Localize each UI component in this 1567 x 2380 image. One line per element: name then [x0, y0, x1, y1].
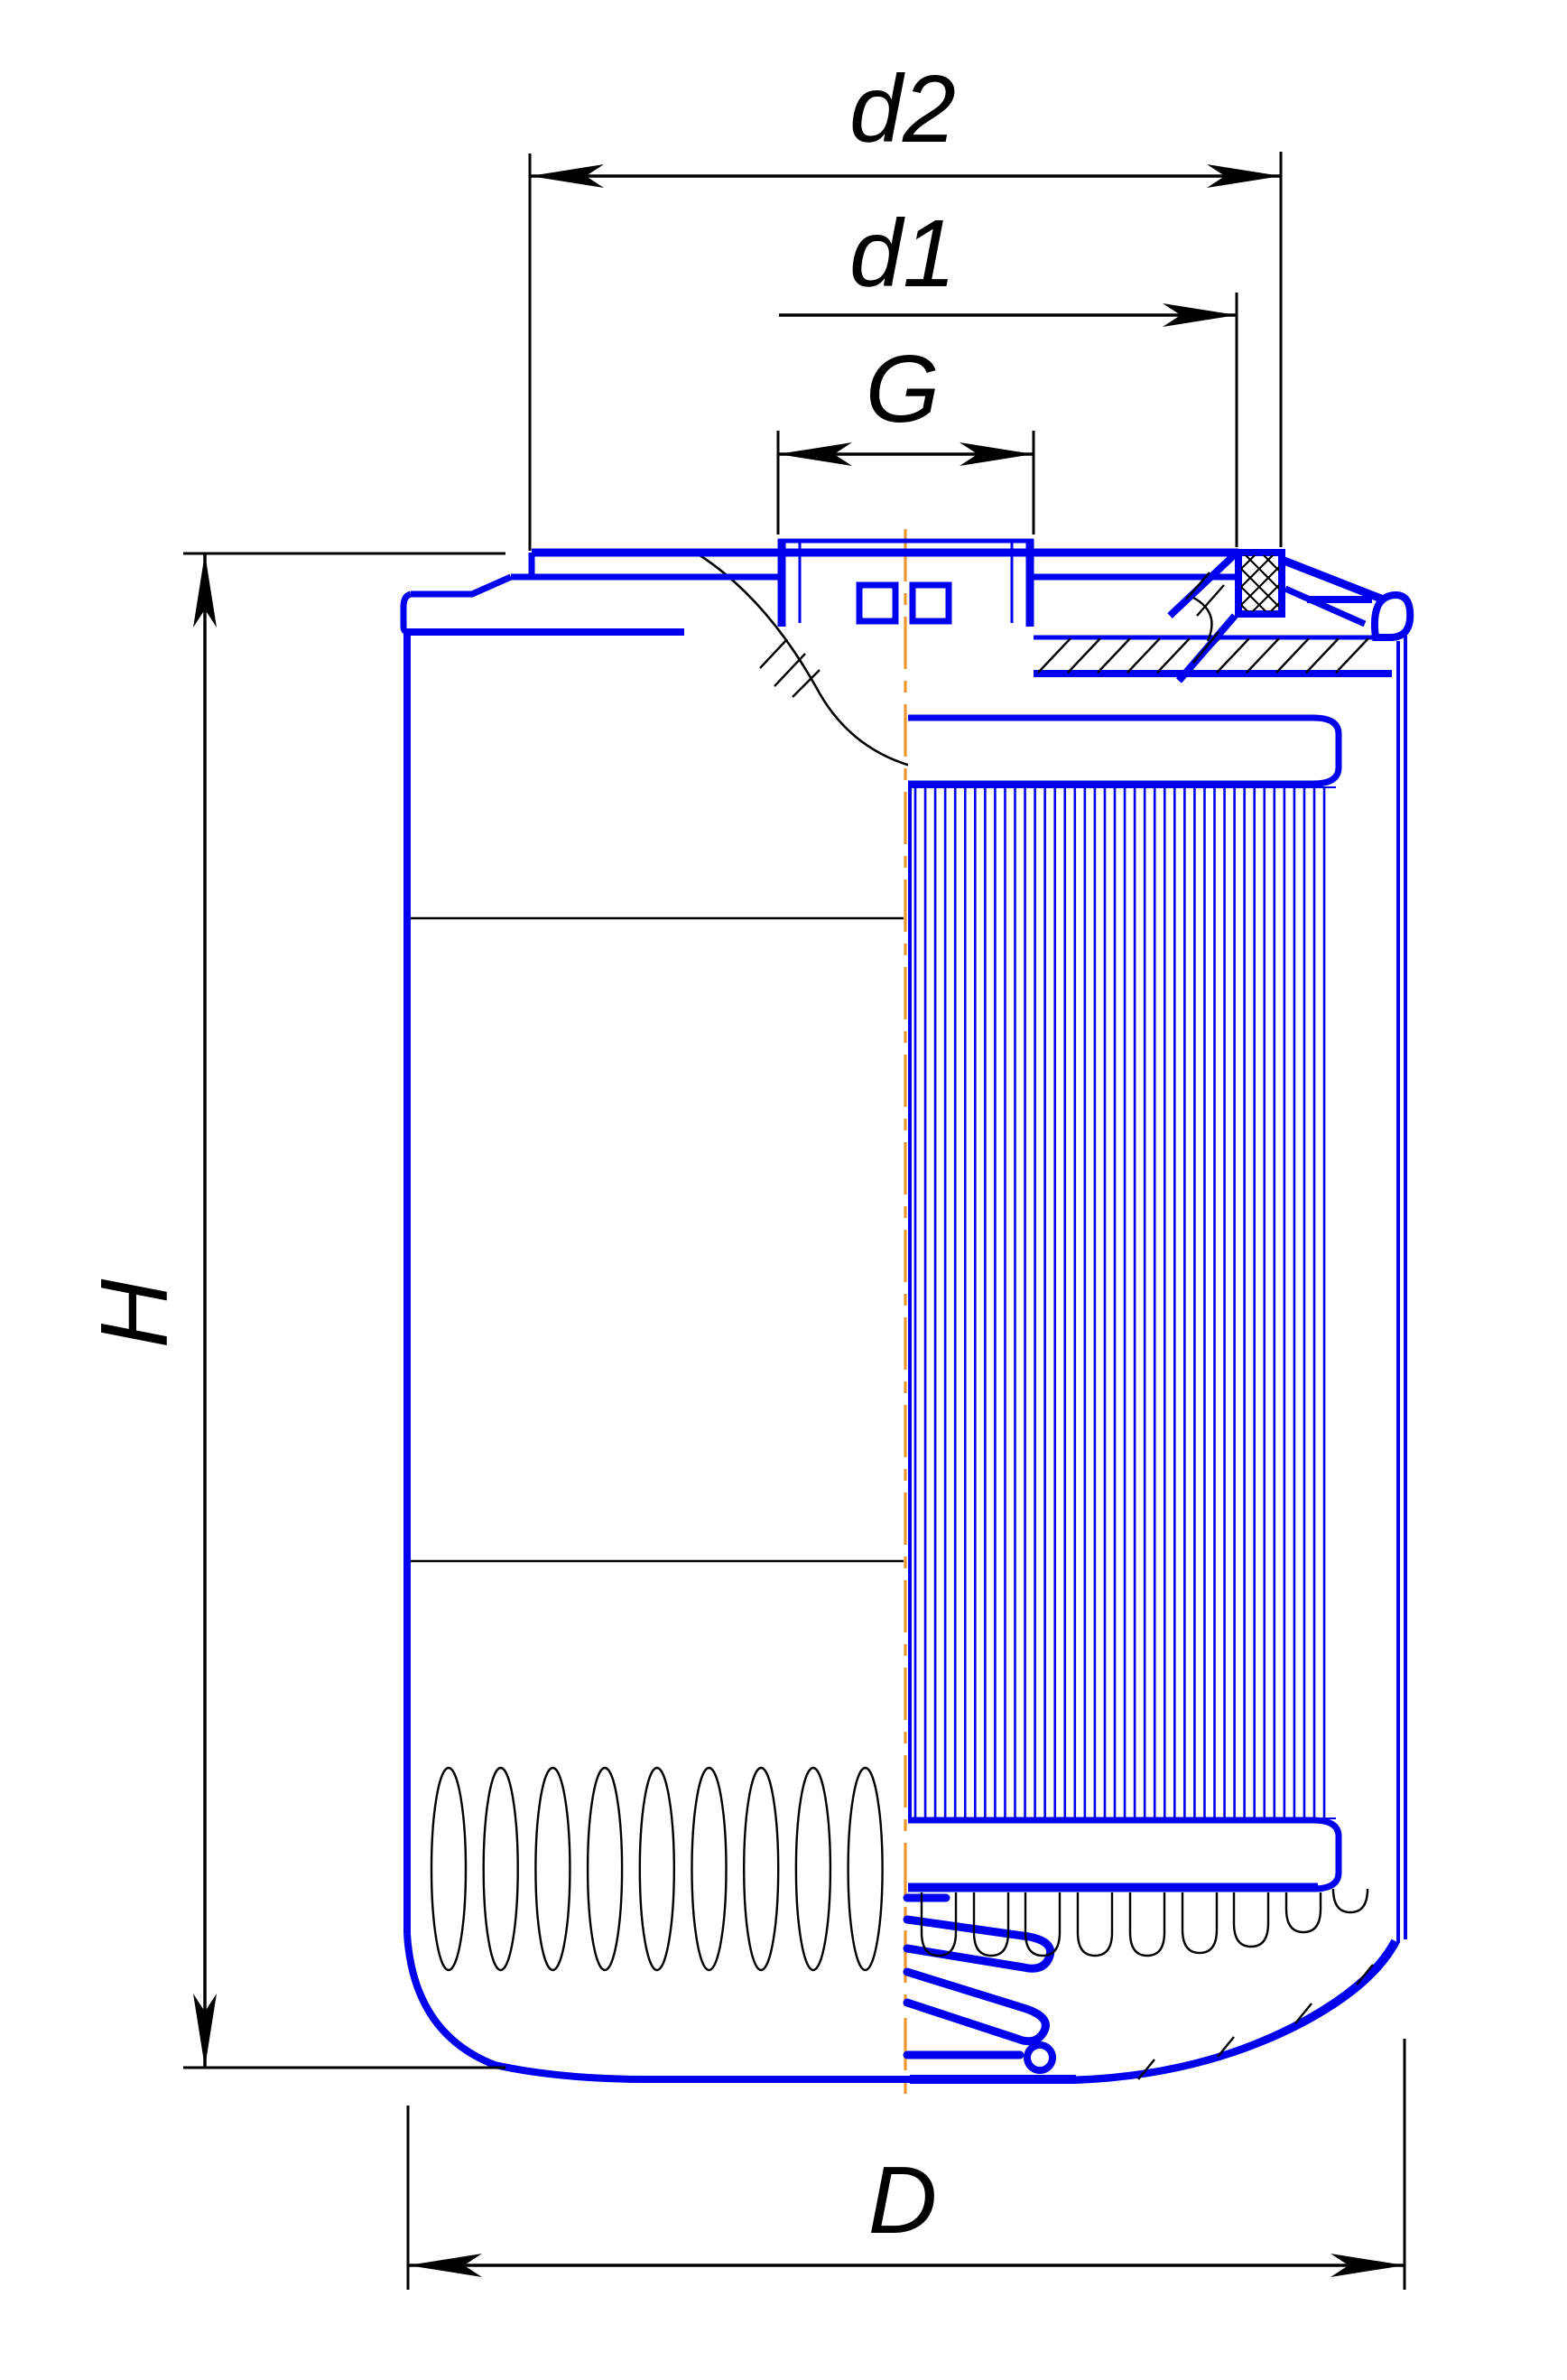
bottom-ribs-outside	[431, 1768, 883, 1970]
seam-fold	[1170, 554, 1235, 681]
dim-label-D: D	[868, 2147, 938, 2254]
body-step-lines	[411, 918, 904, 1561]
dim-label-G: G	[866, 336, 940, 442]
spring	[907, 1898, 1052, 2070]
section-hatching-tube-base	[760, 639, 820, 697]
dim-label-d1: d1	[849, 200, 956, 307]
element-pleats	[915, 787, 1324, 1818]
dimension-G: G	[778, 336, 1034, 535]
drawing-canvas: d2 d1 G H D	[0, 0, 1567, 2380]
bottom-ribs-section	[922, 1889, 1368, 1956]
dimension-d1: d1	[779, 200, 1237, 547]
dim-label-d2: d2	[849, 56, 956, 163]
dimension-H: H	[81, 553, 505, 2068]
filter-drawing: d2 d1 G H D	[0, 0, 1567, 2380]
dim-label-H: H	[81, 1278, 188, 1348]
rolled-seam	[1282, 560, 1410, 637]
gasket	[1187, 551, 1349, 623]
